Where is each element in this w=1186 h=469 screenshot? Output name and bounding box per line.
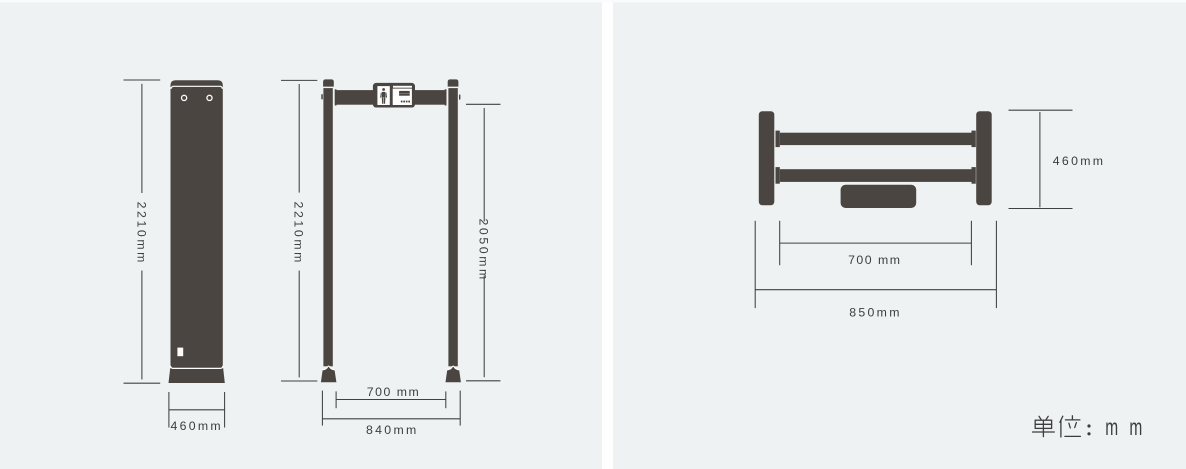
svg-text:700 mm: 700 mm [367, 385, 420, 399]
svg-text:2210mm: 2210mm [134, 202, 148, 265]
svg-text:460mm: 460mm [170, 419, 223, 433]
svg-text:850mm: 850mm [849, 306, 902, 320]
svg-text:mm: mm [1105, 415, 1153, 441]
svg-text:2210mm: 2210mm [292, 202, 306, 265]
svg-text:2050mm: 2050mm [477, 218, 491, 281]
svg-text:700 mm: 700 mm [848, 253, 901, 267]
svg-text:460mm: 460mm [1053, 154, 1106, 168]
svg-text:840mm: 840mm [366, 423, 419, 437]
